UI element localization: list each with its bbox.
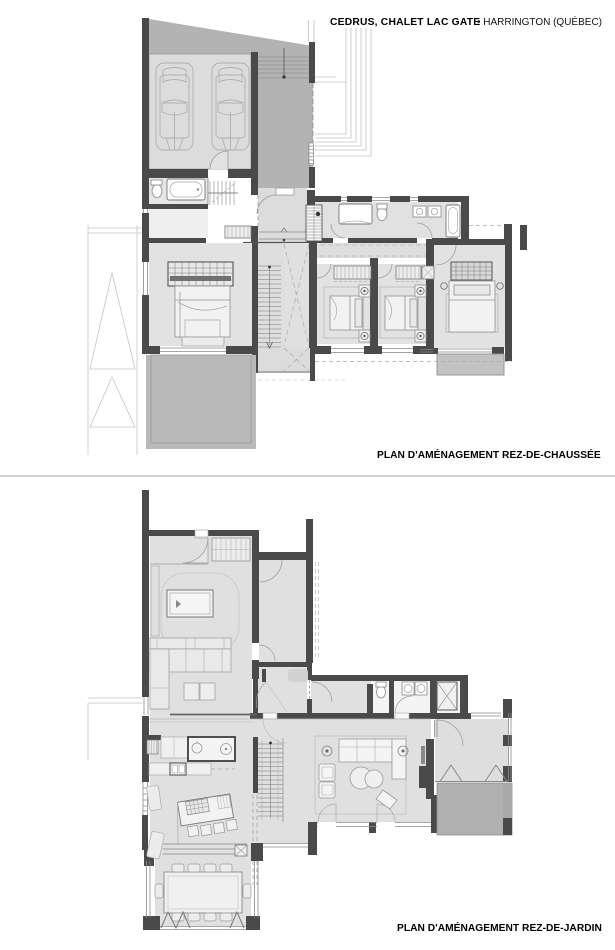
svg-text:CEDRUS, CHALET LAC GATE: CEDRUS, CHALET LAC GATE (330, 17, 480, 28)
svg-text:PLAN D'AMÉNAGEMENT REZ-DE-CHAU: PLAN D'AMÉNAGEMENT REZ-DE-CHAUSSÉE (377, 448, 601, 461)
svg-text:• HARRINGTON (QUÉBEC): • HARRINGTON (QUÉBEC) (477, 15, 602, 28)
svg-text:PLAN D'AMÉNAGEMENT REZ-DE-JARD: PLAN D'AMÉNAGEMENT REZ-DE-JARDIN (397, 921, 602, 934)
